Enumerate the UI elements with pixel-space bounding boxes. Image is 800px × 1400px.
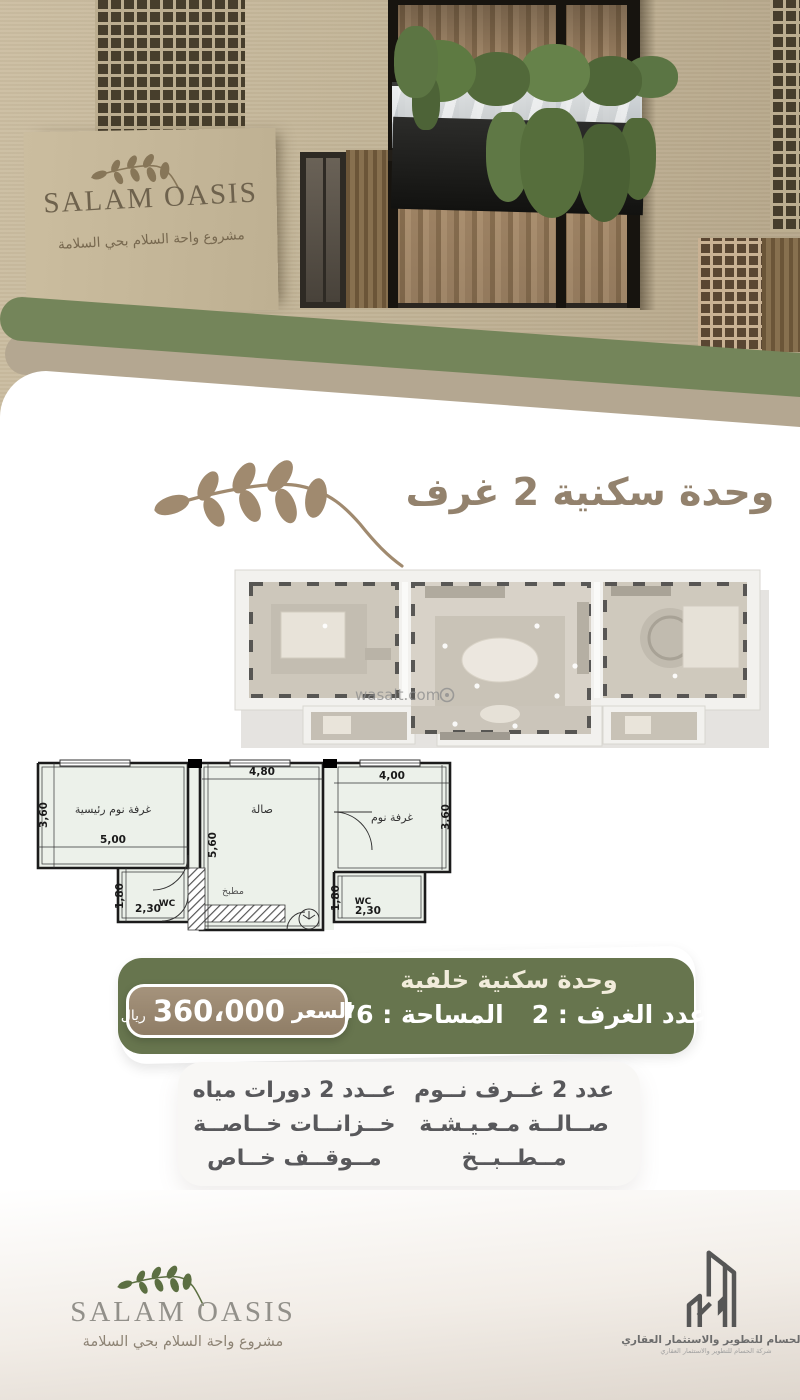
company-tagline: شركة الحسام للتطوير والاستثمار العقاري xyxy=(628,1347,800,1355)
svg-text:4,80: 4,80 xyxy=(249,766,275,778)
photo-watermark: wasalt.com xyxy=(355,686,454,704)
balcony-planter-box xyxy=(391,117,645,216)
price-label: السعر xyxy=(292,999,353,1023)
rooms-count: عدد الغرف : 2 xyxy=(532,1000,707,1029)
svg-text:2,30: 2,30 xyxy=(135,903,161,915)
price-currency: ريال xyxy=(121,1008,146,1024)
svg-text:غرفة نوم: غرفة نوم xyxy=(371,811,413,824)
unit-info-banner-wrap: وحدة سكنية خلفية عدد الغرف : 2 المساحة :… xyxy=(118,958,698,1066)
small-plant xyxy=(394,26,438,98)
hero-logo-title: SALAM OASIS xyxy=(36,176,265,221)
svg-text:مطبخ: مطبخ xyxy=(222,886,244,897)
banner-details: عدد الغرف : 2 المساحة : 76 م xyxy=(334,1000,684,1029)
company-logo: الحسام للتطوير والاستثمار العقاري شركة ا… xyxy=(628,1242,800,1355)
feature-item: عدد 2 غــرف نــوم xyxy=(414,1078,614,1103)
company-logo-mark xyxy=(674,1242,758,1332)
unit-title: وحدة سكنية 2 غرف xyxy=(400,470,780,514)
banner-title: وحدة سكنية خلفية xyxy=(334,966,684,994)
company-name: الحسام للتطوير والاستثمار العقاري xyxy=(628,1334,800,1346)
svg-text:WC: WC xyxy=(159,899,176,909)
svg-text:5,00: 5,00 xyxy=(100,834,126,846)
svg-text:wasalt.com: wasalt.com xyxy=(355,686,440,704)
lattice-screen-top-right xyxy=(770,0,800,232)
price-value: 360،000 xyxy=(153,994,285,1028)
floorplan-2d-drawing: 4,80 4,00 5,00 3,60 3,60 5,60 1,80 2,30 … xyxy=(30,755,460,935)
svg-text:صالة: صالة xyxy=(251,803,273,816)
flyer-canvas: SALAM OASIS مشروع واحة السلام بحي السلام… xyxy=(0,0,800,1400)
svg-text:3,60: 3,60 xyxy=(38,802,50,828)
window-frame-bar xyxy=(388,0,640,5)
hero-logo-subtitle: مشروع واحة السلام بحي السلامة xyxy=(37,226,266,254)
features-card: عدد 2 غــرف نــوم عــدد 2 دورات مياه صــ… xyxy=(178,1062,640,1186)
floorplan-3d-render: wasalt.com xyxy=(215,556,775,756)
feature-item: مــوقــف خــاص xyxy=(193,1146,397,1171)
feature-item: خــزانــات خــاصــة xyxy=(193,1112,397,1137)
feature-item: عــدد 2 دورات مياه xyxy=(193,1078,397,1103)
svg-text:غرفة نوم رئيسية: غرفة نوم رئيسية xyxy=(75,803,151,816)
curved-divider xyxy=(0,285,800,432)
svg-text:1,80: 1,80 xyxy=(330,885,342,911)
feature-item: صــالــة مـعـيـشـة xyxy=(414,1112,614,1137)
svg-text:3,60: 3,60 xyxy=(440,804,452,830)
hero-building-render: SALAM OASIS مشروع واحة السلام بحي السلام… xyxy=(0,0,800,432)
hanging-plants xyxy=(520,108,584,218)
feature-item: مــطــبــخ xyxy=(414,1146,614,1171)
svg-text:5,60: 5,60 xyxy=(207,832,219,858)
footer-logo-subtitle: مشروع واحة السلام بحي السلامة xyxy=(55,1334,311,1350)
footer-logo-title: SALAM OASIS xyxy=(55,1296,311,1329)
svg-text:4,00: 4,00 xyxy=(379,770,405,782)
svg-text:1,80: 1,80 xyxy=(114,883,126,909)
banner-text: وحدة سكنية خلفية عدد الغرف : 2 المساحة :… xyxy=(334,966,684,1029)
price-badge: السعر 360،000 ريال xyxy=(126,984,348,1038)
svg-text:WC: WC xyxy=(355,897,372,907)
